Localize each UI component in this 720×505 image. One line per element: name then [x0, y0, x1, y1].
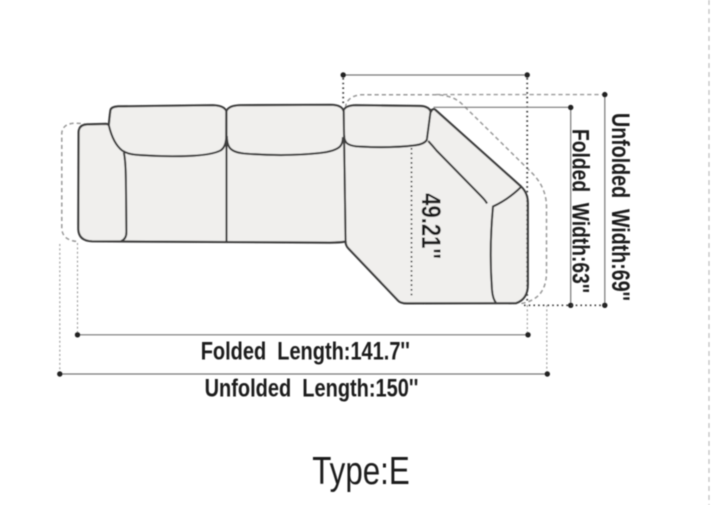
svg-text:Unfolded Length:150'': Unfolded Length:150'': [205, 374, 419, 402]
svg-text:Folded Length:141.7'': Folded Length:141.7'': [201, 337, 410, 364]
svg-text:Type:E: Type:E: [312, 450, 409, 493]
svg-text:Unfolded Width:69'': Unfolded Width:69'': [606, 113, 634, 301]
svg-text:Folded Width:63'': Folded Width:63'': [567, 129, 595, 293]
svg-text:49.21'': 49.21'': [415, 193, 445, 259]
